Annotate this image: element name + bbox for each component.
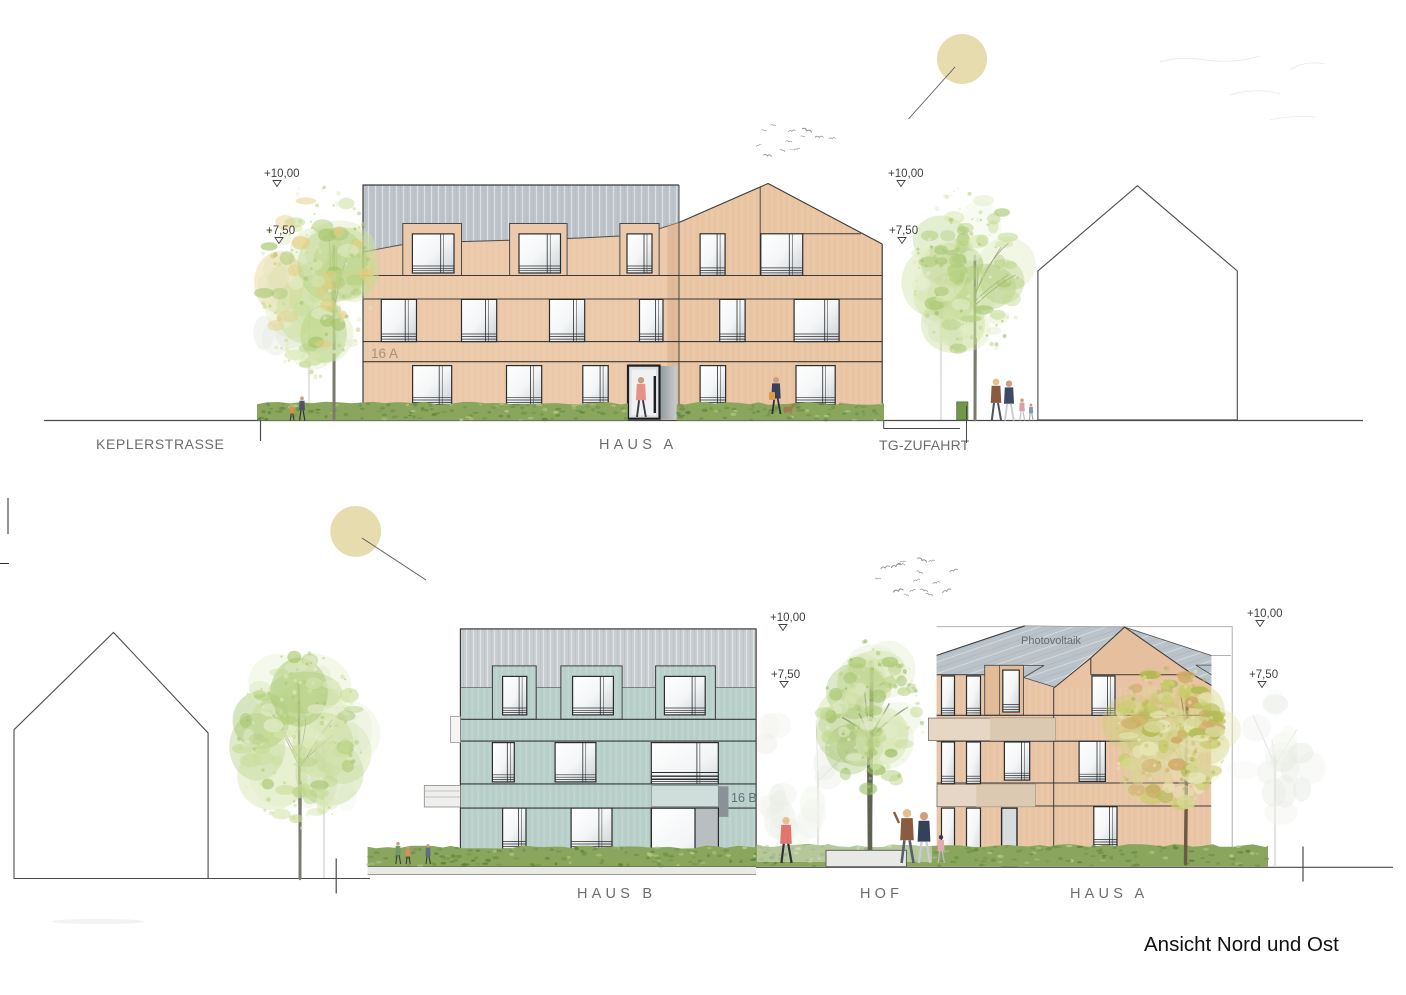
svg-text:+7,50: +7,50: [889, 225, 918, 237]
svg-text:HAUS B: HAUS B: [577, 886, 656, 902]
svg-text:TG-ZUFAHRT: TG-ZUFAHRT: [879, 437, 970, 453]
svg-text:+10,00: +10,00: [770, 612, 806, 624]
svg-text:+7,50: +7,50: [771, 669, 800, 681]
svg-text:HOF: HOF: [860, 886, 903, 902]
svg-text:Ansicht Nord und Ost: Ansicht Nord und Ost: [1144, 933, 1339, 956]
svg-text:+7,50: +7,50: [266, 225, 295, 237]
svg-text:+10,00: +10,00: [888, 168, 924, 180]
svg-text:16 A: 16 A: [371, 346, 398, 361]
svg-text:KEPLERSTRASSE: KEPLERSTRASSE: [96, 436, 224, 452]
svg-text:+10,00: +10,00: [264, 168, 300, 180]
svg-text:16 B: 16 B: [731, 791, 757, 805]
svg-text:HAUS A: HAUS A: [1070, 886, 1148, 902]
svg-text:+10,00: +10,00: [1247, 608, 1283, 620]
svg-text:+7,50: +7,50: [1249, 669, 1278, 681]
svg-text:Photovoltaik: Photovoltaik: [1021, 635, 1081, 647]
svg-text:HAUS A: HAUS A: [599, 437, 677, 453]
